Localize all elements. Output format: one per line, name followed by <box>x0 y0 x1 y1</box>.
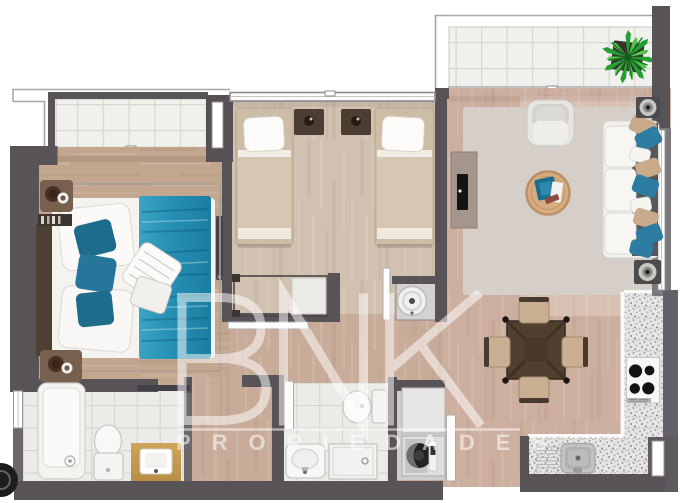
svg-text:PROPIEDADES: PROPIEDADES <box>176 430 567 455</box>
